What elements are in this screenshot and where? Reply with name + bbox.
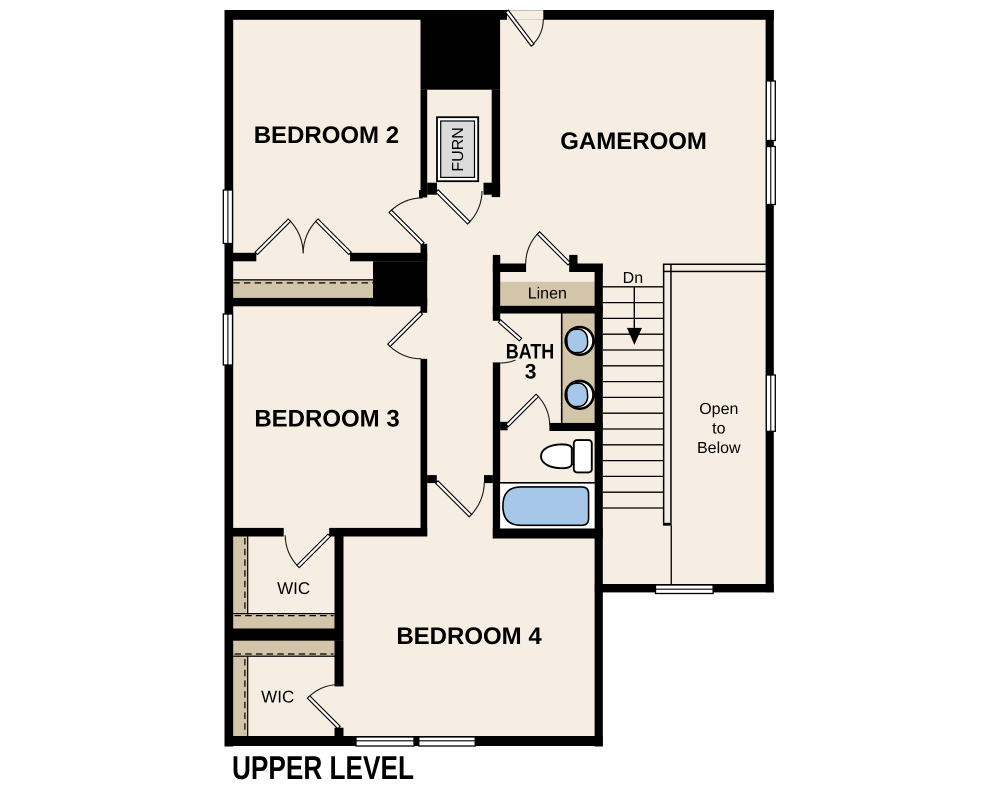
svg-text:WIC: WIC [261, 687, 294, 706]
svg-text:WIC: WIC [277, 579, 310, 598]
svg-text:FURN: FURN [450, 127, 467, 171]
svg-text:Open: Open [699, 401, 738, 418]
svg-text:Below: Below [697, 440, 741, 457]
svg-text:BEDROOM 3: BEDROOM 3 [254, 405, 399, 432]
svg-text:BEDROOM 2: BEDROOM 2 [254, 122, 399, 149]
svg-text:UPPER LEVEL: UPPER LEVEL [232, 749, 414, 786]
svg-text:BEDROOM 4: BEDROOM 4 [396, 623, 542, 650]
svg-text:to: to [712, 420, 725, 437]
svg-text:Linen: Linen [528, 286, 567, 303]
svg-text:3: 3 [525, 361, 537, 384]
svg-text:Dn: Dn [623, 270, 643, 287]
svg-text:GAMEROOM: GAMEROOM [560, 128, 707, 155]
